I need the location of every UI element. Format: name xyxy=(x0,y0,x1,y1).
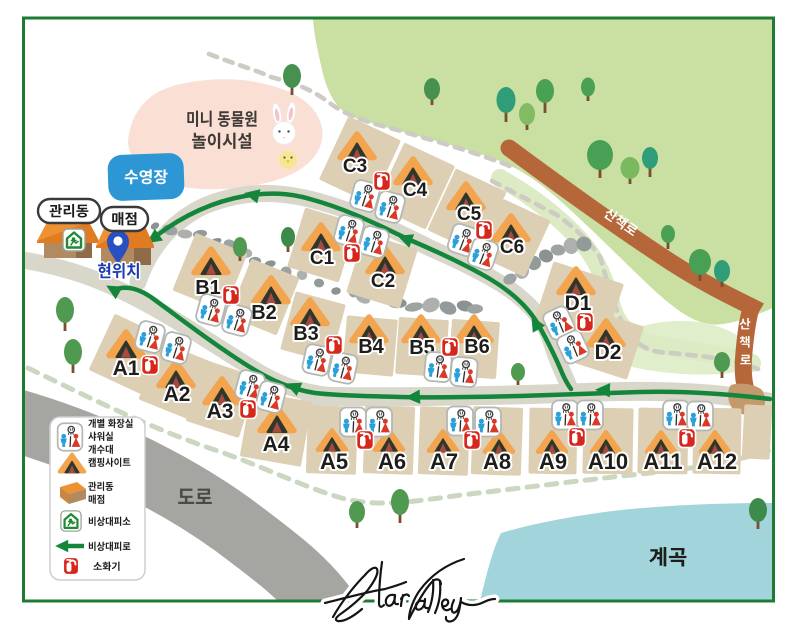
svg-text:A1: A1 xyxy=(113,357,140,380)
svg-text:A11: A11 xyxy=(643,449,682,474)
svg-text:C6: C6 xyxy=(500,237,524,258)
svg-text:D2: D2 xyxy=(595,341,622,364)
svg-text:B3: B3 xyxy=(293,323,319,345)
svg-text:B4: B4 xyxy=(358,336,384,358)
svg-text:C2: C2 xyxy=(371,271,395,292)
svg-text:C3: C3 xyxy=(343,156,367,177)
svg-text:A3: A3 xyxy=(207,400,234,423)
svg-text:A7: A7 xyxy=(430,449,458,474)
svg-text:A2: A2 xyxy=(164,383,191,406)
svg-text:A6: A6 xyxy=(378,449,406,474)
svg-text:A4: A4 xyxy=(263,433,290,456)
svg-text:A8: A8 xyxy=(483,449,511,474)
svg-text:A9: A9 xyxy=(539,449,567,474)
svg-text:C1: C1 xyxy=(310,248,335,269)
svg-text:B2: B2 xyxy=(251,302,277,324)
svg-text:C4: C4 xyxy=(403,180,428,201)
svg-text:B6: B6 xyxy=(464,336,490,358)
svg-text:A5: A5 xyxy=(320,449,348,474)
svg-text:A12: A12 xyxy=(697,449,737,474)
svg-text:A10: A10 xyxy=(588,449,628,474)
